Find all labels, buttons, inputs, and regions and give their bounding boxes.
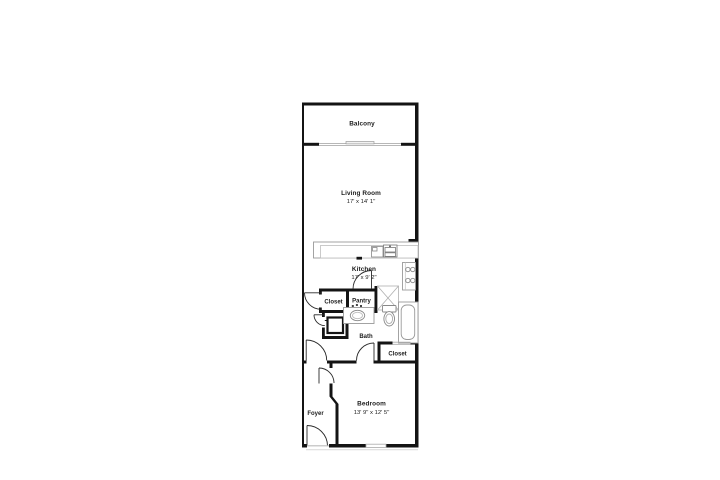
closet-upper-label: Closet: [324, 300, 342, 306]
wall: [302, 143, 319, 146]
wall-angled: [330, 397, 339, 405]
wall: [375, 286, 378, 313]
wall: [302, 361, 307, 364]
wall: [329, 444, 366, 448]
wall: [302, 103, 419, 106]
pantry-label: Pantry: [352, 299, 371, 305]
wall: [386, 444, 419, 448]
foyer-label: Foyer: [307, 411, 324, 417]
bath-label: Bath: [359, 334, 373, 340]
hall-door-arc: [306, 340, 327, 361]
wall: [330, 384, 333, 397]
sliding-door-icon: [319, 142, 401, 146]
stove-icon: [403, 263, 416, 291]
kitchen-label: Kitchen: [352, 266, 376, 273]
closet-lower-label: Closet: [388, 352, 406, 358]
living-room-label: Living Room: [341, 190, 381, 197]
water-heater-icon: [325, 318, 343, 334]
wall: [302, 103, 304, 448]
window-icon: [366, 444, 386, 447]
bath-door-arc: [357, 343, 375, 361]
counter-tick: [357, 257, 363, 260]
bedroom-door-arc: [319, 368, 334, 384]
closet-door-arc: [305, 293, 322, 310]
wall: [322, 336, 349, 339]
living-room-dims: 17' x 14' 1": [347, 199, 376, 205]
wall: [302, 444, 307, 448]
wall: [336, 404, 339, 446]
bedroom-dims: 13' 9" x 12' 5": [354, 410, 390, 416]
bathtub-icon: [399, 302, 419, 343]
floor-plan-page: Balcony Living Room 17' x 14' 1" Kitchen…: [0, 0, 720, 480]
wall: [378, 342, 381, 364]
dishwasher-icon: [372, 247, 384, 258]
door-arcs: [305, 271, 375, 447]
wall: [330, 361, 333, 369]
bedroom-label: Bedroom: [357, 401, 386, 408]
balcony-label: Balcony: [349, 121, 375, 128]
kitchen-dims: 17' x 9' 2": [351, 275, 376, 281]
entry-door-arc: [307, 425, 329, 446]
wall: [401, 143, 419, 146]
floor-plan-svg: Balcony Living Room 17' x 14' 1" Kitchen…: [0, 0, 720, 480]
kitchen-counter: [314, 242, 419, 258]
wall: [319, 289, 322, 295]
toilet-icon: [383, 306, 397, 326]
kitchen-sink-icon: [384, 245, 398, 257]
